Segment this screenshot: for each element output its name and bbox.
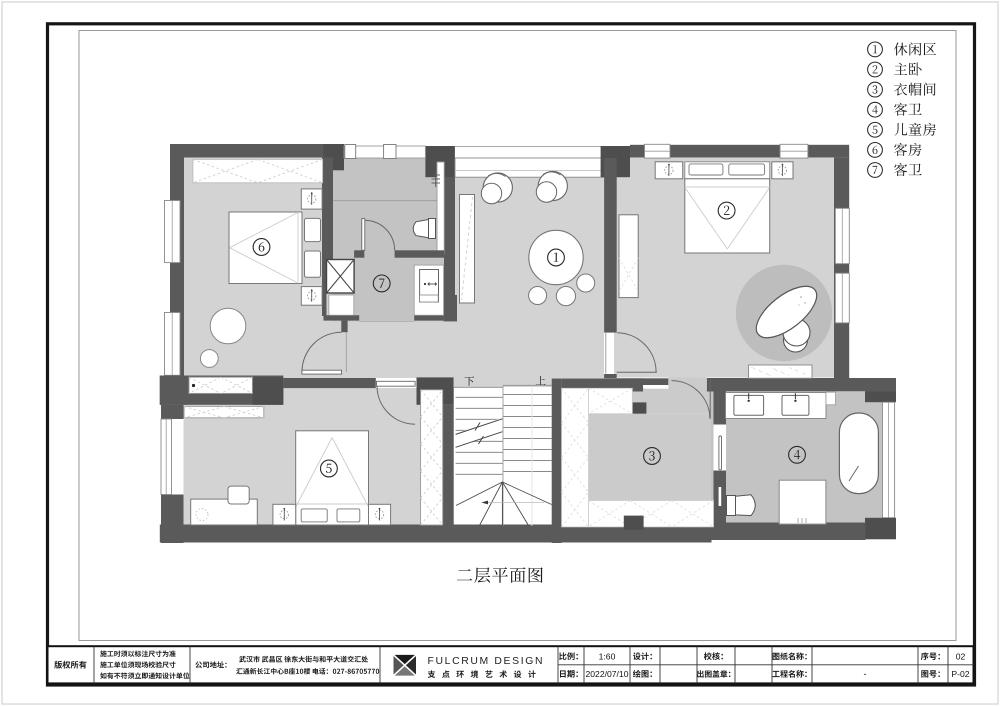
svg-text:2022/07/10: 2022/07/10	[585, 669, 628, 679]
svg-text:02: 02	[956, 651, 966, 661]
svg-text:-: -	[864, 669, 867, 679]
svg-text:P-02: P-02	[951, 669, 969, 679]
svg-text:1:60: 1:60	[599, 651, 616, 661]
svg-text:FULCRUM DESIGN: FULCRUM DESIGN	[428, 656, 545, 667]
